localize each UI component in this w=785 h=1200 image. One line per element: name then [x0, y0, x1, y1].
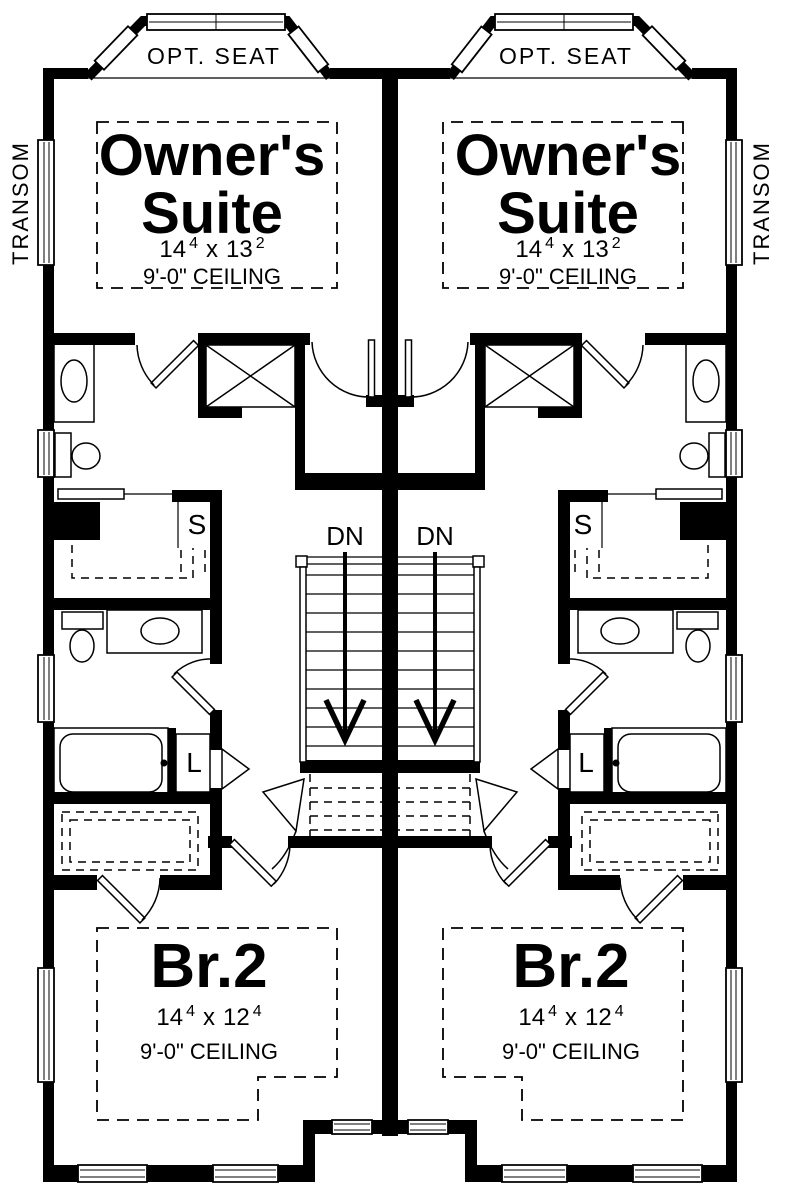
owner-suite-name-line1-left: Owner's — [99, 123, 326, 188]
floor-plan-drawing: OPT. SEAT TRANSOM Owner's Suite 144x132 … — [0, 0, 785, 1200]
br2-dimensions-right: 144x124 — [518, 1003, 623, 1031]
bath2-toilet-tank — [62, 612, 103, 629]
owner-door-swing-arc — [312, 342, 371, 397]
floor-plan-canvas: OPT. SEAT TRANSOM Owner's Suite 144x132 … — [0, 0, 785, 1200]
tub-alcove — [54, 728, 168, 798]
transom-label-right: TRANSOM — [749, 141, 774, 265]
br2-closet-inner — [70, 820, 190, 862]
stair-down-label-left: DN — [326, 521, 364, 551]
br2-closet — [62, 812, 198, 870]
br2-ceiling-right: 9'-0" CEILING — [502, 1039, 640, 1064]
stair-newel-post — [296, 556, 307, 567]
bath1-door — [137, 341, 198, 388]
bath1-toilet-tank — [55, 433, 71, 477]
bath2-vanity — [107, 610, 202, 653]
linen-closet-door — [222, 749, 249, 789]
stair-down-label-right: DN — [416, 521, 454, 551]
bay-right-angled-window — [288, 26, 328, 72]
closet-shelf — [58, 489, 124, 499]
br2-name-left: Br.2 — [150, 932, 267, 1001]
owner-suite-door — [312, 340, 375, 397]
bay-window-label-left: OPT. SEAT — [147, 43, 281, 69]
bay-left-angled-window — [95, 26, 138, 70]
stair-railing — [300, 567, 306, 762]
bath2-toilet-bowl — [70, 630, 94, 662]
br2-name-right: Br.2 — [512, 932, 629, 1001]
shelf-label-left: S — [188, 509, 207, 540]
bathtub — [60, 734, 162, 792]
owner-suite-ceiling-right: 9'-0" CEILING — [499, 264, 637, 289]
br2-door — [98, 876, 160, 923]
owner-suite-dimensions-right: 144x132 — [515, 235, 620, 263]
br2-ceiling-left: 9'-0" CEILING — [140, 1039, 278, 1064]
bath1 — [54, 335, 100, 477]
bath2-door-leaf — [172, 672, 214, 714]
owner-door-leaf — [369, 340, 375, 397]
hall-door-leaf — [230, 840, 277, 887]
linen-label-left: L — [186, 747, 202, 778]
owner-closet — [206, 345, 295, 407]
stair-door-wedge — [263, 779, 304, 831]
hall-door — [230, 779, 304, 886]
staircase — [296, 552, 382, 836]
bath1-toilet-bowl — [72, 443, 100, 469]
br2-door-leaf — [98, 876, 145, 923]
bath1-door-swing-arc — [137, 345, 154, 385]
stair-treads-below — [310, 774, 382, 836]
shelf-label-right: S — [574, 509, 593, 540]
transom-label-left: TRANSOM — [8, 141, 33, 265]
br2-door-swing-arc — [142, 878, 160, 920]
bay-window-label-right: OPT. SEAT — [499, 43, 633, 69]
bath1-sink — [61, 360, 87, 402]
bath1-vanity — [54, 335, 94, 422]
bath1-door-leaf — [151, 341, 198, 388]
closet-shelf-dashed — [72, 545, 205, 578]
bath2-door-swing-arc — [174, 659, 215, 674]
owner-suite-dimensions-left: 144x132 — [159, 235, 264, 263]
owner-suite-ceiling-left: 9'-0" CEILING — [143, 264, 281, 289]
owner-suite-name-line1-right: Owner's — [455, 123, 682, 188]
br2-dimensions-left: 144x124 — [156, 1003, 261, 1031]
bath2-sink — [141, 618, 179, 644]
tub-faucet — [161, 760, 168, 767]
linen-label-right: L — [578, 747, 594, 778]
